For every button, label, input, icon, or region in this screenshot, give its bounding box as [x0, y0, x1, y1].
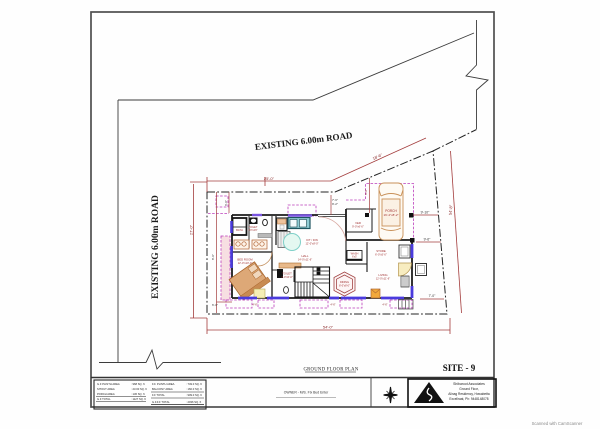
svg-text:F.F TOTAL: F.F TOTAL [152, 393, 165, 397]
svg-text:Shibaroot Associates: Shibaroot Associates [453, 382, 485, 386]
svg-text:8'-0"x8'-0": 8'-0"x8'-0" [339, 284, 350, 287]
svg-text:4'-0"x6'-0": 4'-0"x6'-0" [281, 275, 293, 279]
svg-text:Ground Floor,: Ground Floor, [459, 387, 479, 391]
svg-text:4'-6": 4'-6" [382, 303, 387, 307]
svg-text:G.F PLINTH AREA: G.F PLINTH AREA [97, 382, 120, 386]
svg-text:Scanned with CamScanner: Scanned with CamScanner [532, 421, 583, 426]
svg-text:9'-10": 9'-10" [421, 211, 430, 215]
svg-text:8'-0": 8'-0" [211, 254, 215, 260]
svg-text:6'-0": 6'-0" [224, 200, 228, 206]
svg-text:: 136 SQ. ft: : 136 SQ. ft [131, 392, 145, 396]
svg-text:16'-4"x8'-2": 16'-4"x8'-2" [383, 213, 398, 217]
svg-text:BED ROOM: BED ROOM [237, 258, 253, 262]
svg-text:25'-0": 25'-0" [264, 176, 275, 181]
svg-text:PORCH AREA: PORCH AREA [97, 392, 115, 396]
svg-text:STORE: STORE [376, 249, 386, 253]
svg-text:BALCONY AREA: BALCONY AREA [152, 387, 173, 391]
svg-text:9'-0"x6'-0": 9'-0"x6'-0" [352, 224, 364, 228]
svg-text:: 1127 SQ. ft: : 1127 SQ. ft [131, 397, 146, 401]
svg-text:: 23.00 SQ. ft: : 23.00 SQ. ft [131, 387, 147, 391]
svg-text:12'-0"x10'-0": 12'-0"x10'-0" [238, 261, 253, 265]
svg-text:9'-2": 9'-2" [332, 202, 338, 206]
svg-text:: 749.0 SQ. ft: : 749.0 SQ. ft [186, 382, 202, 386]
svg-text:LIVING: LIVING [378, 273, 387, 277]
svg-text:8'0"x4'0": 8'0"x4'0" [248, 229, 257, 232]
svg-text:6'-0"x5'-0": 6'-0"x5'-0" [375, 252, 387, 256]
svg-text:KIT / DIN: KIT / DIN [306, 238, 317, 242]
svg-text:: 2036 SQ. ft: : 2036 SQ. ft [186, 400, 201, 404]
svg-text:7'-0": 7'-0" [429, 294, 437, 298]
svg-text:OWNER - M/S. Fix Bud Enter: OWNER - M/S. Fix Bud Enter [284, 391, 329, 395]
svg-text:EXISTING 6.00m ROAD: EXISTING 6.00m ROAD [151, 195, 161, 299]
svg-text:4'-6": 4'-6" [330, 303, 335, 307]
svg-text:Excellraat, Ph: 9448148078: Excellraat, Ph: 9448148078 [449, 397, 488, 401]
svg-text:TOILET: TOILET [282, 272, 292, 276]
svg-text:F.F. PLINTH AREA: F.F. PLINTH AREA [152, 382, 175, 386]
svg-text:G.F.F.F TOTAL: G.F.F.F TOTAL [152, 400, 170, 404]
svg-text:14'-0"x11'-6": 14'-0"x11'-6" [298, 257, 312, 261]
svg-text:9'-6": 9'-6" [424, 238, 432, 242]
svg-text:DINING: DINING [340, 280, 349, 284]
svg-text:54'-0": 54'-0" [323, 325, 334, 330]
svg-text:54'-8": 54'-8" [448, 204, 454, 215]
svg-text:12'-0"x8'-0": 12'-0"x8'-0" [305, 241, 318, 245]
svg-text:Alinag Residency, Howabetta: Alinag Residency, Howabetta [448, 392, 490, 396]
svg-text:: 909.0 SQ. ft: : 909.0 SQ. ft [186, 393, 202, 397]
svg-text:G.F TOTAL: G.F TOTAL [97, 397, 111, 401]
svg-text:: 160.0 SQ. ft: : 160.0 SQ. ft [186, 387, 202, 391]
svg-text:6'x5': 6'x5' [352, 256, 357, 259]
svg-text:27'-0": 27'-0" [189, 224, 194, 235]
svg-text:: 968 SQ. ft: : 968 SQ. ft [131, 382, 145, 386]
svg-text:4'-6": 4'-6" [252, 303, 257, 307]
svg-text:HALL: HALL [302, 254, 309, 258]
svg-text:BATH: BATH [236, 228, 243, 232]
svg-text:SITE - 9: SITE - 9 [443, 363, 476, 373]
svg-text:12'-0"x11'-6": 12'-0"x11'-6" [376, 276, 390, 280]
svg-text:6'-0": 6'-0" [212, 303, 218, 307]
svg-text:VER: VER [355, 221, 361, 225]
svg-text:6'-0": 6'-0" [364, 189, 368, 195]
svg-text:SITOUT AREA: SITOUT AREA [97, 387, 115, 391]
